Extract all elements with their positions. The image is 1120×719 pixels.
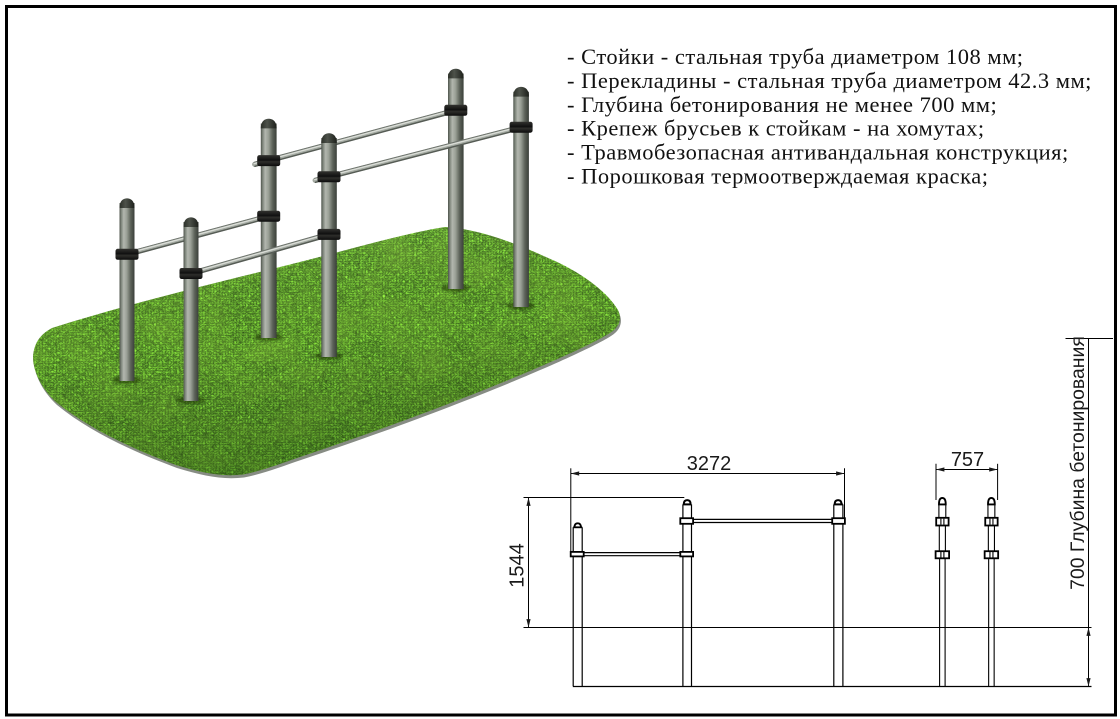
svg-text:700 Глубина бетонирования: 700 Глубина бетонирования [1067,336,1089,590]
svg-text:- Порошковая термоотверждаемая: - Порошковая термоотверждаемая краска; [567,164,989,189]
svg-text:757: 757 [951,449,984,471]
svg-text:- Крепеж брусьев к стойкам - н: - Крепеж брусьев к стойкам - на хомутах; [567,116,985,141]
svg-text:- Глубина бетонирования не мен: - Глубина бетонирования не менее 700 мм; [567,92,997,117]
svg-text:- Травмобезопасная антивандаль: - Травмобезопасная антивандальная констр… [567,140,1069,165]
svg-text:- Стойки - стальная труба диам: - Стойки - стальная труба диаметром 108 … [567,44,1024,69]
svg-text:1544: 1544 [507,543,529,588]
svg-text:3272: 3272 [687,453,732,475]
svg-text:- Перекладины - стальная труба: - Перекладины - стальная труба диаметром… [567,68,1092,93]
